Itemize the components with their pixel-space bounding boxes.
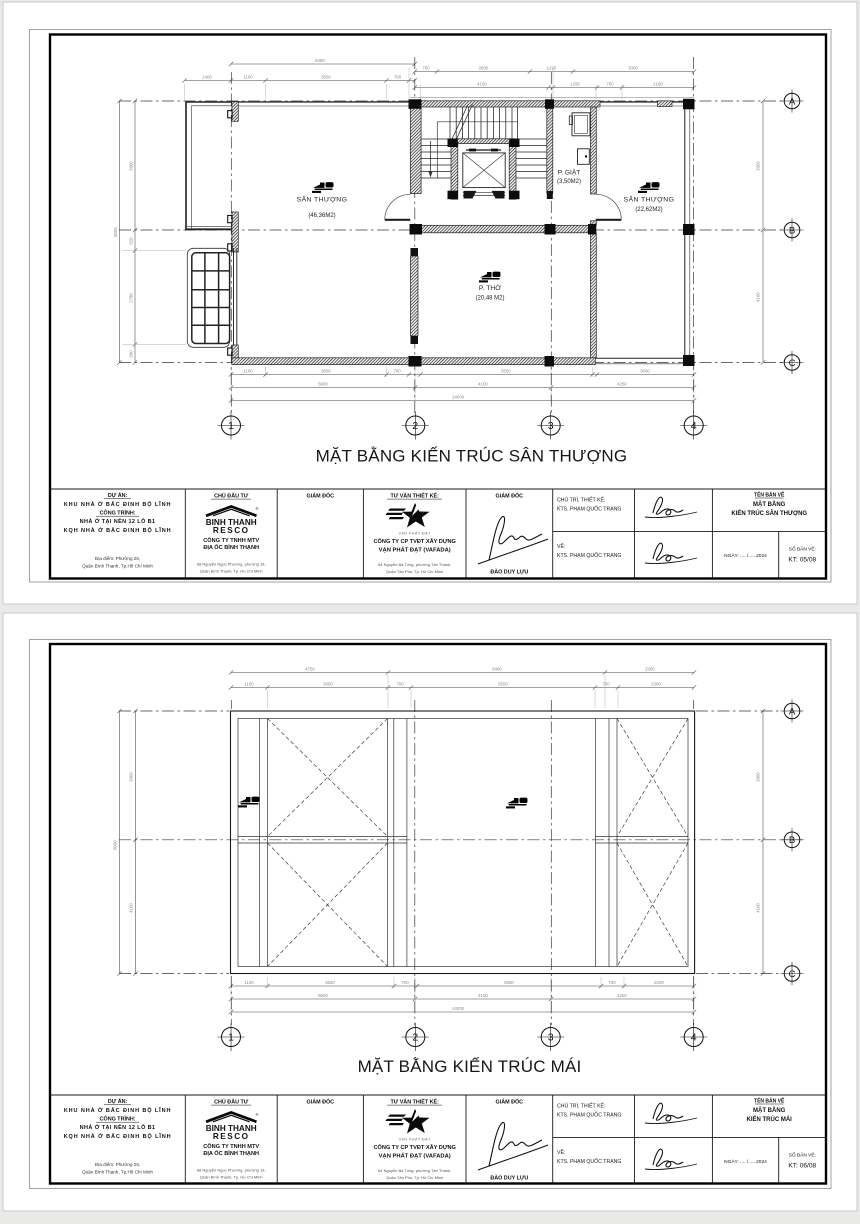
svg-text:4150: 4150 [477, 82, 487, 87]
svg-text:3900: 3900 [756, 161, 761, 171]
svg-text:3: 3 [548, 1032, 554, 1044]
svg-text:620: 620 [129, 237, 134, 245]
svg-text:B: B [789, 835, 795, 846]
svg-text:MẶT BẰNG: MẶT BẰNG [753, 1106, 786, 1114]
svg-text:1100: 1100 [244, 980, 254, 985]
svg-text:8000: 8000 [113, 840, 118, 850]
svg-text:KIẾN TRÚC SÂN THƯỢNG: KIẾN TRÚC SÂN THƯỢNG [731, 510, 807, 517]
svg-text:A: A [789, 706, 796, 717]
svg-text:KHU NHÀ Ở BẮC ĐINH BỘ LĨNH: KHU NHÀ Ở BẮC ĐINH BỘ LĨNH [64, 1106, 172, 1114]
svg-text:Quận Bình Thạnh, Tp.Hồ Chí Min: Quận Bình Thạnh, Tp.Hồ Chí Minh [82, 564, 153, 569]
svg-text:1400: 1400 [202, 75, 212, 80]
svg-text:RESCO: RESCO [213, 526, 250, 535]
svg-text:(3,50M2): (3,50M2) [557, 179, 581, 185]
svg-text:4250: 4250 [617, 993, 627, 998]
svg-text:KT: 05/08: KT: 05/08 [788, 557, 816, 564]
svg-text:KIẾN TRÚC MÁI: KIẾN TRÚC MÁI [747, 1116, 793, 1123]
svg-text:TƯ VẤN THIẾT KẾ:: TƯ VẤN THIẾT KẾ: [390, 1099, 439, 1106]
svg-text:(46,36M2): (46,36M2) [308, 213, 335, 219]
svg-text:5550: 5550 [501, 369, 511, 374]
svg-text:SÂN THƯỢNG: SÂN THƯỢNG [297, 195, 348, 204]
svg-text:(20,48 M2): (20,48 M2) [475, 296, 504, 302]
svg-text:4100: 4100 [756, 292, 761, 302]
svg-text:ĐỊA ỐC BÌNH THẠNH: ĐỊA ỐC BÌNH THẠNH [203, 1149, 259, 1157]
svg-text:NGÀY: .... /......2024: NGÀY: .... /......2024 [724, 552, 767, 559]
svg-text:4750: 4750 [305, 667, 315, 672]
svg-text:2300: 2300 [651, 682, 661, 687]
svg-text:Quận Bình Thạnh, Tp.Hồ Chí Min: Quận Bình Thạnh, Tp.Hồ Chí Minh [82, 1170, 153, 1175]
svg-text:CÔNG TY CP TVĐT XÂY DỰNG: CÔNG TY CP TVĐT XÂY DỰNG [374, 537, 456, 545]
svg-text:TÊN BẢN VẼ: TÊN BẢN VẼ [754, 491, 785, 499]
svg-text:4: 4 [691, 1032, 697, 1044]
svg-text:GIÁM ĐỐC: GIÁM ĐỐC [307, 493, 335, 500]
svg-text:RESCO: RESCO [213, 1132, 250, 1141]
svg-text:14000: 14000 [452, 1006, 465, 1011]
svg-text:700: 700 [606, 82, 614, 87]
svg-text:GIÁM ĐỐC: GIÁM ĐỐC [496, 1099, 524, 1106]
svg-text:5550: 5550 [498, 682, 508, 687]
svg-text:MẶT BẰNG KIẾN TRÚC MÁI: MẶT BẰNG KIẾN TRÚC MÁI [358, 1057, 582, 1076]
svg-text:NHÀ Ở TẠI NỀN 12 LÔ B1: NHÀ Ở TẠI NỀN 12 LÔ B1 [80, 1123, 156, 1131]
svg-text:(22,62M2): (22,62M2) [635, 207, 662, 213]
svg-text:C: C [789, 358, 796, 369]
svg-text:®: ® [256, 1112, 259, 1117]
svg-text:®: ® [256, 506, 259, 511]
svg-text:CHỦ TRÌ, THIẾT KẾ:: CHỦ TRÌ, THIẾT KẾ: [557, 497, 605, 504]
svg-text:4100: 4100 [478, 382, 488, 387]
svg-text:TƯ VẤN THIẾT KẾ:: TƯ VẤN THIẾT KẾ: [390, 493, 439, 500]
svg-text:A: A [789, 96, 796, 107]
svg-text:VẠN PHÁT ĐẠT: VẠN PHÁT ĐẠT [399, 532, 431, 536]
svg-text:CÔNG TY TNHH MTV: CÔNG TY TNHH MTV [203, 536, 259, 544]
svg-text:KTS. PHẠM QUỐC TRẠNG: KTS. PHẠM QUỐC TRẠNG [557, 1158, 621, 1165]
svg-text:1100: 1100 [243, 369, 253, 374]
svg-text:KT: 06/08: KT: 06/08 [788, 1163, 816, 1170]
svg-text:CÔNG TY CP TVĐT XÂY DỰNG: CÔNG TY CP TVĐT XÂY DỰNG [374, 1143, 456, 1151]
svg-text:VẠN PHÁT ĐẠT (VAFADA): VẠN PHÁT ĐẠT (VAFADA) [379, 547, 451, 554]
svg-text:700: 700 [422, 66, 430, 71]
svg-text:2180: 2180 [653, 82, 663, 87]
svg-text:ĐỊA ỐC BÌNH THẠNH: ĐỊA ỐC BÌNH THẠNH [203, 543, 259, 551]
svg-text:3: 3 [548, 420, 554, 432]
svg-text:1: 1 [228, 420, 234, 432]
svg-text:2: 2 [412, 1032, 418, 1044]
svg-text:3000: 3000 [628, 66, 638, 71]
svg-text:MẶT BẰNG KIẾN TRÚC SÂN THƯỢNG: MẶT BẰNG KIẾN TRÚC SÂN THƯỢNG [316, 447, 628, 466]
svg-text:NGÀY: .... /......2024: NGÀY: .... /......2024 [724, 1158, 767, 1165]
svg-text:700: 700 [396, 682, 404, 687]
svg-text:ĐÀO DUY LỰU: ĐÀO DUY LỰU [490, 1175, 528, 1182]
svg-text:3900: 3900 [129, 161, 134, 171]
svg-text:4: 4 [691, 420, 697, 432]
svg-text:14000: 14000 [452, 395, 465, 400]
svg-text:1: 1 [228, 1032, 234, 1044]
svg-text:8000: 8000 [113, 227, 118, 237]
svg-text:3900: 3900 [129, 772, 134, 782]
svg-text:700: 700 [393, 369, 401, 374]
svg-text:6460: 6460 [492, 667, 502, 672]
svg-text:4250: 4250 [617, 382, 627, 387]
svg-text:2800: 2800 [479, 66, 489, 71]
svg-text:P. THỜ: P. THỜ [479, 283, 501, 292]
svg-text:3000: 3000 [640, 369, 650, 374]
svg-text:VẼ:: VẼ: [557, 543, 565, 550]
svg-text:3820: 3820 [325, 980, 335, 985]
svg-text:CHỦ ĐẦU TƯ: CHỦ ĐẦU TƯ [214, 493, 249, 500]
svg-text:4100: 4100 [756, 903, 761, 913]
svg-text:KHU NHÀ Ở BẮC ĐINH BỘ LĨNH: KHU NHÀ Ở BẮC ĐINH BỘ LĨNH [64, 500, 172, 508]
svg-text:KQH NHÀ Ở BẮC ĐINH BỘ LĨNH: KQH NHÀ Ở BẮC ĐINH BỘ LĨNH [64, 526, 172, 534]
svg-text:KTS. PHẠM QUỐC TRẠNG: KTS. PHẠM QUỐC TRẠNG [557, 552, 621, 559]
svg-text:DỰ ÁN:: DỰ ÁN: [108, 492, 128, 499]
svg-text:5600: 5600 [318, 993, 328, 998]
svg-text:CHỦ ĐẦU TƯ: CHỦ ĐẦU TƯ [214, 1099, 249, 1106]
svg-text:KQH NHÀ Ở BẮC ĐINH BỘ LĨNH: KQH NHÀ Ở BẮC ĐINH BỘ LĨNH [64, 1132, 172, 1140]
svg-text:2780: 2780 [129, 293, 134, 303]
svg-text:2: 2 [412, 420, 418, 432]
svg-text:700: 700 [401, 980, 409, 985]
svg-text:VẠN PHÁT ĐẠT: VẠN PHÁT ĐẠT [399, 1138, 431, 1142]
svg-text:700: 700 [608, 980, 616, 985]
svg-text:KTS. PHẠM QUỐC TRẠNG: KTS. PHẠM QUỐC TRẠNG [557, 506, 621, 513]
svg-text:700: 700 [602, 682, 610, 687]
svg-text:VẠN PHÁT ĐẠT (VAFADA): VẠN PHÁT ĐẠT (VAFADA) [379, 1153, 451, 1160]
svg-text:C: C [789, 969, 796, 980]
svg-text:1295: 1295 [570, 82, 580, 87]
svg-text:5600: 5600 [318, 382, 328, 387]
svg-text:MẶT BẰNG: MẶT BẰNG [753, 500, 786, 508]
svg-text:88 Nguyễn Ngọc Phương, phường: 88 Nguyễn Ngọc Phương, phường 19, [197, 562, 266, 567]
svg-text:CÔNG TRÌNH:: CÔNG TRÌNH: [100, 509, 136, 517]
svg-text:ĐÀO DUY LỰU: ĐÀO DUY LỰU [490, 569, 528, 576]
svg-text:NHÀ Ở TẠI NỀN 12 LÔ B1: NHÀ Ở TẠI NỀN 12 LÔ B1 [80, 517, 156, 525]
svg-text:64 Nguyễn Bá Tòng, phường Tân: 64 Nguyễn Bá Tòng, phường Tân Thành, [378, 1168, 451, 1173]
svg-text:SỐ BẢN VẼ:: SỐ BẢN VẼ: [789, 1152, 816, 1159]
svg-text:SÂN THƯỢNG: SÂN THƯỢNG [624, 195, 675, 204]
svg-text:CHỦ TRÌ, THIẾT KẾ:: CHỦ TRÌ, THIẾT KẾ: [557, 1103, 605, 1110]
svg-text:2300: 2300 [645, 667, 655, 672]
svg-text:CÔNG TY TNHH MTV: CÔNG TY TNHH MTV [203, 1142, 259, 1150]
svg-text:CÔNG TRÌNH:: CÔNG TRÌNH: [100, 1115, 136, 1123]
svg-text:P. GIẶT: P. GIẶT [558, 168, 581, 177]
svg-text:DỰ ÁN:: DỰ ÁN: [108, 1098, 128, 1105]
svg-text:Địa điểm: Phường 26,: Địa điểm: Phường 26, [95, 555, 140, 561]
svg-text:2200: 2200 [654, 980, 664, 985]
svg-text:KTS. PHẠM QUỐC TRẠNG: KTS. PHẠM QUỐC TRẠNG [557, 1112, 621, 1119]
svg-text:88 Nguyễn Ngọc Phương, phường: 88 Nguyễn Ngọc Phương, phường 19, [197, 1168, 266, 1173]
svg-text:1100: 1100 [243, 75, 253, 80]
svg-text:3650: 3650 [321, 75, 331, 80]
svg-text:VẼ:: VẼ: [557, 1149, 565, 1156]
svg-text:Quận Bình Thạnh, Tp. Hồ Chí Mi: Quận Bình Thạnh, Tp. Hồ Chí Minh [200, 569, 263, 574]
svg-text:4100: 4100 [478, 993, 488, 998]
svg-text:Quận Tân Phú, Tp. Hồ Chí Minh: Quận Tân Phú, Tp. Hồ Chí Minh [386, 1175, 443, 1180]
svg-text:GIÁM ĐỐC: GIÁM ĐỐC [496, 493, 524, 500]
svg-text:1100: 1100 [244, 682, 254, 687]
svg-text:64 Nguyễn Bá Tòng, phường Tân: 64 Nguyễn Bá Tòng, phường Tân Thành, [378, 562, 451, 567]
svg-text:Quận Tân Phú, Tp. Hồ Chí Minh: Quận Tân Phú, Tp. Hồ Chí Minh [386, 569, 443, 574]
svg-text:700: 700 [394, 75, 402, 80]
svg-text:Địa điểm: Phường 26,: Địa điểm: Phường 26, [95, 1161, 140, 1167]
svg-text:3900: 3900 [756, 772, 761, 782]
svg-text:SỐ BẢN VẼ:: SỐ BẢN VẼ: [789, 546, 816, 553]
svg-text:3650: 3650 [321, 369, 331, 374]
svg-text:1295: 1295 [547, 66, 557, 71]
svg-text:3650: 3650 [323, 682, 333, 687]
svg-text:5550: 5550 [504, 980, 514, 985]
svg-text:580: 580 [129, 350, 134, 358]
svg-text:Quận Bình Thạnh, Tp. Hồ Chí Mi: Quận Bình Thạnh, Tp. Hồ Chí Minh [200, 1175, 263, 1180]
svg-text:B: B [789, 225, 795, 236]
svg-text:5480: 5480 [315, 58, 325, 63]
svg-text:4100: 4100 [129, 903, 134, 913]
svg-text:GIÁM ĐỐC: GIÁM ĐỐC [307, 1099, 335, 1106]
svg-text:TÊN BẢN VẼ: TÊN BẢN VẼ [754, 1097, 785, 1105]
